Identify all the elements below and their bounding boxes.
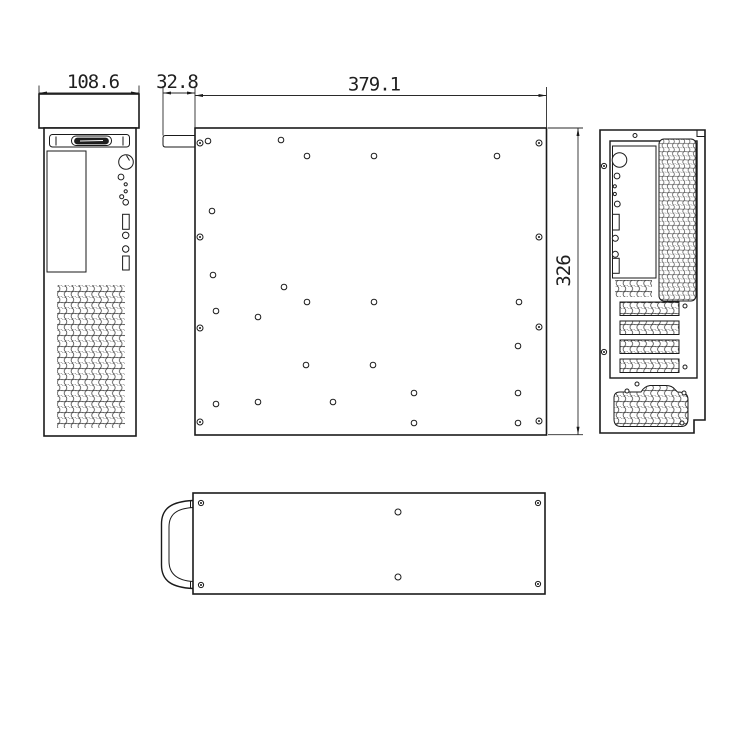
usb-port (613, 258, 620, 273)
reset-button (118, 174, 124, 180)
usb-port (613, 214, 620, 230)
dim-label-front-width: 108.6 (67, 71, 120, 93)
hole (303, 362, 309, 368)
front-vent-grille (57, 285, 125, 428)
hole-dot (538, 236, 540, 238)
hole-dot (603, 165, 605, 167)
dim-body-height: 326 (548, 128, 583, 435)
hole (255, 399, 261, 405)
hole-dot (200, 502, 202, 504)
hole (304, 299, 310, 305)
carry-handle-inner (169, 508, 193, 582)
usb-port (123, 214, 130, 229)
hole (209, 208, 215, 214)
hole (278, 137, 284, 143)
expansion-slot-cover (620, 340, 679, 354)
carry-handle-outer (162, 501, 194, 589)
led-indicator (120, 195, 124, 199)
io-vent-block (615, 280, 652, 297)
audio-jack (614, 173, 620, 179)
power-button (119, 155, 134, 170)
led-indicator (124, 190, 127, 193)
hole-dot (199, 142, 201, 144)
hole-dot (603, 351, 605, 353)
front-view (39, 94, 139, 436)
drawing-svg: 108.6 32.8 379.1 326 (0, 0, 750, 750)
hole (683, 304, 687, 308)
hole (395, 574, 401, 580)
usb-port (123, 256, 130, 270)
drive-bay-cover (47, 151, 86, 272)
bottom-panel (193, 493, 545, 594)
expansion-slot-cover (620, 359, 679, 373)
front-top-cap (39, 94, 139, 128)
hole (635, 382, 639, 386)
hole (625, 389, 629, 393)
arrowhead (539, 94, 547, 97)
hole-dot (538, 420, 540, 422)
hole (516, 299, 522, 305)
hole (395, 509, 401, 515)
audio-jack (612, 235, 618, 241)
rear-view (600, 130, 705, 433)
expansion-slot-cover (620, 321, 679, 335)
hole (370, 362, 376, 368)
dim-front-width: 108.6 (39, 71, 139, 95)
chassis-technical-drawing: 108.6 32.8 379.1 326 (0, 0, 750, 750)
dim-front-depth-tab: 32.8 (156, 71, 198, 136)
hole (213, 401, 219, 407)
dim-label-body-length: 379.1 (348, 74, 401, 96)
hole (213, 308, 219, 314)
hole-dot (199, 327, 201, 329)
hole (515, 343, 521, 349)
dim-label-front-depth-tab: 32.8 (156, 71, 198, 93)
audio-jack (123, 200, 129, 206)
arrowhead (195, 94, 203, 97)
audio-jack (123, 232, 129, 238)
hole (515, 420, 521, 426)
hole (494, 153, 500, 159)
audio-jack (614, 201, 620, 207)
arrowhead (577, 128, 580, 136)
hole-dot (199, 421, 201, 423)
hole (411, 420, 417, 426)
hole-dot (538, 326, 540, 328)
side-panel-tab (163, 136, 195, 148)
hole (682, 391, 686, 395)
audio-jack (123, 246, 129, 252)
hole (255, 314, 261, 320)
arrowhead (577, 427, 580, 435)
hole (515, 390, 521, 396)
led-indicator (613, 192, 616, 195)
hole-dot (200, 584, 202, 586)
hole (371, 299, 377, 305)
dim-label-body-height: 326 (553, 255, 575, 287)
logo-mark (80, 141, 103, 142)
hole-dot (538, 142, 540, 144)
audio-jack (612, 251, 618, 257)
hole (411, 390, 417, 396)
led-indicator (613, 185, 616, 188)
expansion-slot-cover (620, 302, 679, 316)
side-panel (195, 128, 547, 435)
bottom-view (162, 493, 546, 594)
hole (205, 138, 211, 144)
hole (330, 399, 336, 405)
hole-dot (537, 502, 539, 504)
hole (210, 272, 216, 278)
hole-dot (537, 583, 539, 585)
ps2-port (612, 153, 627, 168)
led-indicator (124, 183, 127, 186)
hole (680, 421, 684, 425)
hole (304, 153, 310, 159)
side-view (163, 128, 547, 435)
hole (683, 365, 687, 369)
hole-dot (199, 236, 201, 238)
dim-body-length: 379.1 (195, 74, 547, 129)
hole (371, 153, 377, 159)
hole (633, 134, 637, 138)
rear-vent-grille (659, 139, 696, 301)
hole (281, 284, 287, 290)
